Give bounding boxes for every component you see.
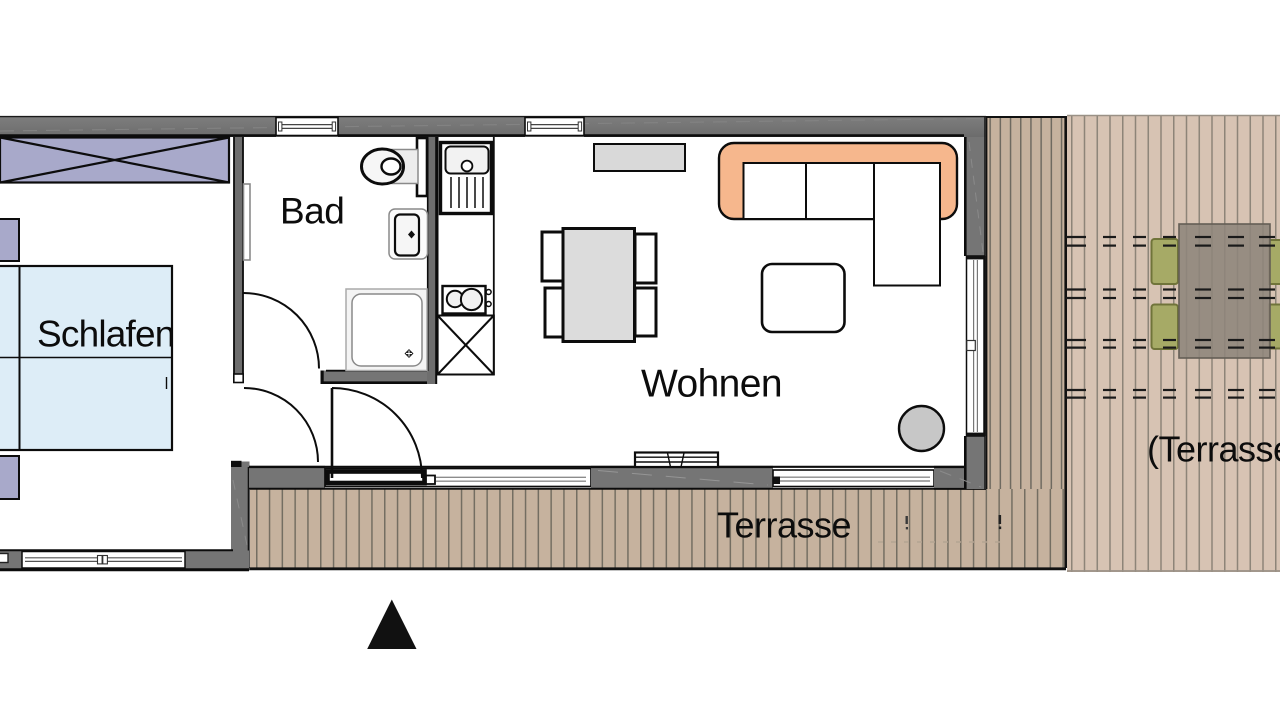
svg-text:Schlafen: Schlafen: [37, 314, 175, 355]
svg-text:Wohnen: Wohnen: [641, 363, 782, 406]
svg-text:Bad: Bad: [280, 191, 344, 232]
svg-text:Terrasse: Terrasse: [717, 505, 851, 546]
svg-text:(Terrasse): (Terrasse): [1147, 429, 1280, 470]
